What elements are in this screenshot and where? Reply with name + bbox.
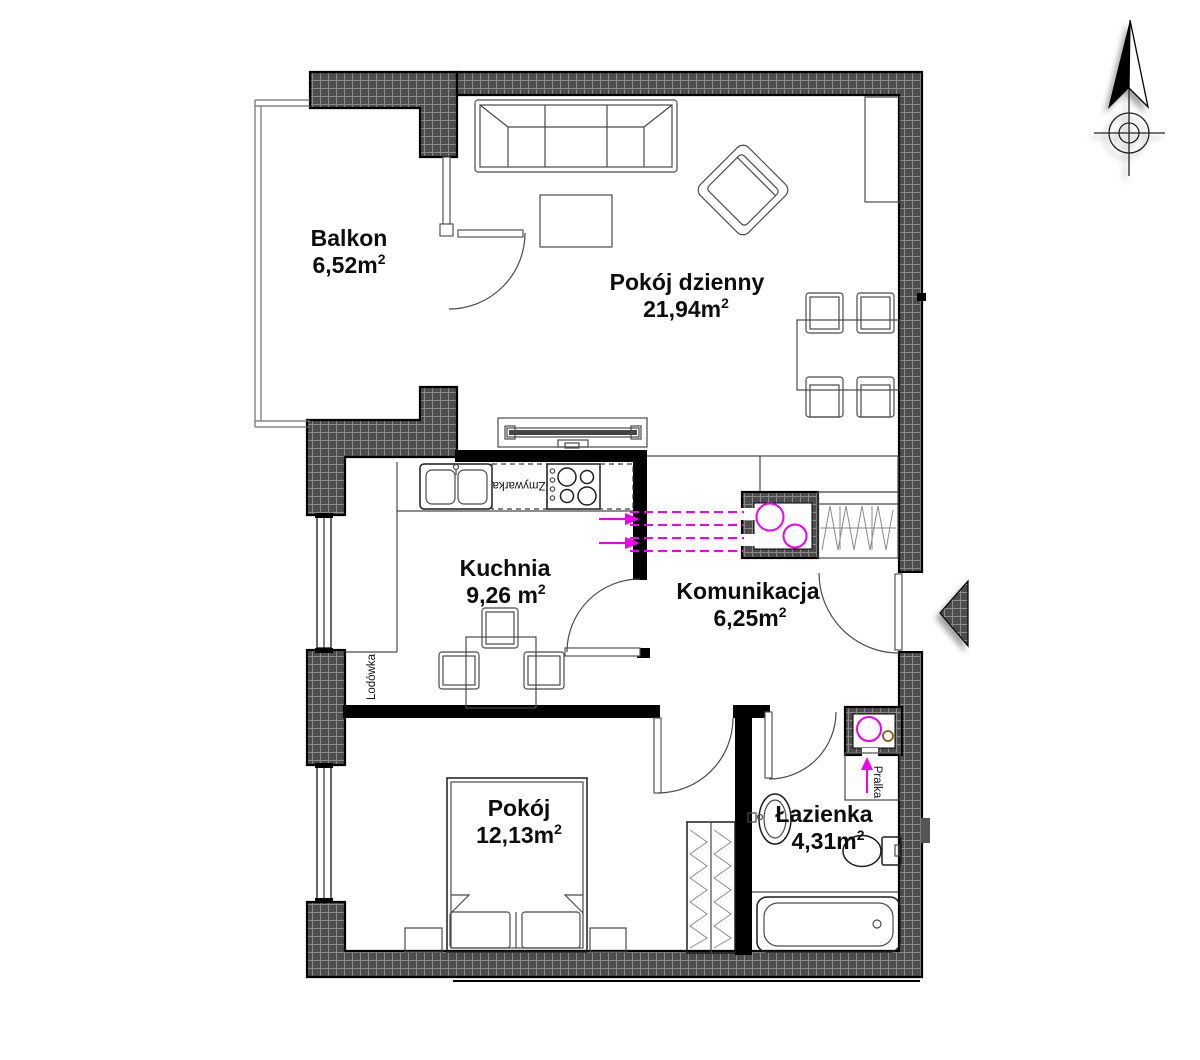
burner-icon <box>561 490 574 503</box>
kitchen-door-leaf <box>565 648 640 656</box>
room-label-komunikacja: Komunikacja <box>676 578 819 604</box>
balcony-railing <box>255 100 310 427</box>
sofa <box>475 100 677 172</box>
wall-kitchen-top <box>455 450 647 462</box>
faucet-icon <box>454 465 459 470</box>
nightstand <box>405 928 442 952</box>
burner-icon <box>558 468 576 486</box>
fridge-label: Lodówka <box>366 653 378 700</box>
burner-icon <box>578 487 596 505</box>
kitchen-chair <box>524 652 564 689</box>
dining-chair <box>806 293 843 333</box>
bathtub <box>757 897 900 952</box>
wall-bump-right <box>921 818 930 843</box>
hall-shelf <box>760 456 898 492</box>
compass-north-icon <box>1094 20 1165 176</box>
room-label-kuchnia: Kuchnia <box>460 555 551 581</box>
entrance-arrow-icon <box>940 581 968 646</box>
room-label-pokoj-dzienny: Pokój dzienny <box>610 269 765 295</box>
bedroom <box>405 718 735 953</box>
stove <box>547 464 600 509</box>
bathroom-door-swing <box>769 712 836 779</box>
dining-chair <box>857 377 894 417</box>
bedroom-window <box>315 763 333 903</box>
bedroom-door-leaf <box>654 718 661 793</box>
sheet-fold-icon <box>451 895 469 913</box>
nightstand <box>590 928 626 952</box>
room-area-balkon: 6,52m2 <box>312 251 385 278</box>
wall-top-balcony <box>310 72 457 157</box>
room-label-lazienka: Łazienka <box>775 801 872 827</box>
kitchen-door-swing <box>567 579 640 652</box>
burner-icon <box>581 471 594 484</box>
wall-balcony-bottom <box>307 387 457 515</box>
room-area-pokoj-dzienny: 21,94m2 <box>643 295 729 322</box>
balcony-door-fixed-pane <box>443 157 450 232</box>
dining-set <box>797 293 900 417</box>
wall-left-middle <box>307 650 345 765</box>
pillow <box>522 912 580 948</box>
room-label-pokoj: Pokój <box>488 795 551 821</box>
kitchen-table-set <box>439 608 564 708</box>
kitchen-chair <box>439 652 479 689</box>
kitchen-chair <box>482 608 518 648</box>
kitchen-window <box>315 513 333 653</box>
wall-bathroom-left <box>735 718 752 955</box>
armchair <box>695 142 791 238</box>
balcony-door-leaf <box>458 230 523 237</box>
drain-icon <box>873 920 881 928</box>
coffee-table <box>540 195 612 247</box>
dining-table <box>797 320 900 390</box>
wall-tick-right <box>917 293 926 301</box>
coat-closet <box>818 492 898 558</box>
sheet-fold-icon <box>565 895 583 913</box>
dining-chair <box>857 293 894 333</box>
room-label-balkon: Balkon <box>311 225 388 251</box>
bedroom-door-swing <box>658 718 733 793</box>
counter-reserved <box>600 464 633 509</box>
balcony <box>255 100 525 427</box>
balcony-door-swing <box>449 233 525 309</box>
ventilation-lines <box>599 512 744 551</box>
dishwasher-label: Zmywarka <box>492 479 546 491</box>
entrance-door-swing <box>819 573 899 653</box>
vent-shaft-bath <box>845 707 902 758</box>
wall-top-and-right <box>457 72 922 572</box>
wardrobe-clothes-icon <box>714 830 731 948</box>
washer-label: Pralka <box>871 766 883 799</box>
pillow <box>450 912 510 948</box>
room-area-kuchnia: 9,26 m2 <box>466 581 546 608</box>
entrance-door <box>819 572 922 653</box>
kitchen-sink <box>420 464 492 509</box>
room-area-komunikacja: 6,25m2 <box>713 604 786 631</box>
vent-shaft-hall <box>739 492 818 558</box>
wall-kitchen-side <box>633 462 647 580</box>
cabinet <box>865 97 900 202</box>
room-area-lazienka: 4,31m2 <box>791 827 864 854</box>
tv-screen <box>509 430 637 435</box>
floor-plan-drawing: Balkon 6,52m2 Pokój dzienny 21,94m2 Kuch… <box>0 0 1200 1060</box>
tv-stand <box>498 418 647 448</box>
wall-bedroom-top <box>343 705 660 718</box>
room-area-pokoj: 12,13m2 <box>476 821 562 848</box>
wardrobe <box>687 822 735 953</box>
wardrobe-clothes-icon <box>690 830 707 948</box>
floor-plan-canvas: Balkon 6,52m2 Pokój dzienny 21,94m2 Kuch… <box>0 0 1200 1060</box>
balcony-door-hinge <box>440 224 453 236</box>
bathroom-door-leaf <box>765 712 772 778</box>
dining-chair <box>806 377 843 417</box>
